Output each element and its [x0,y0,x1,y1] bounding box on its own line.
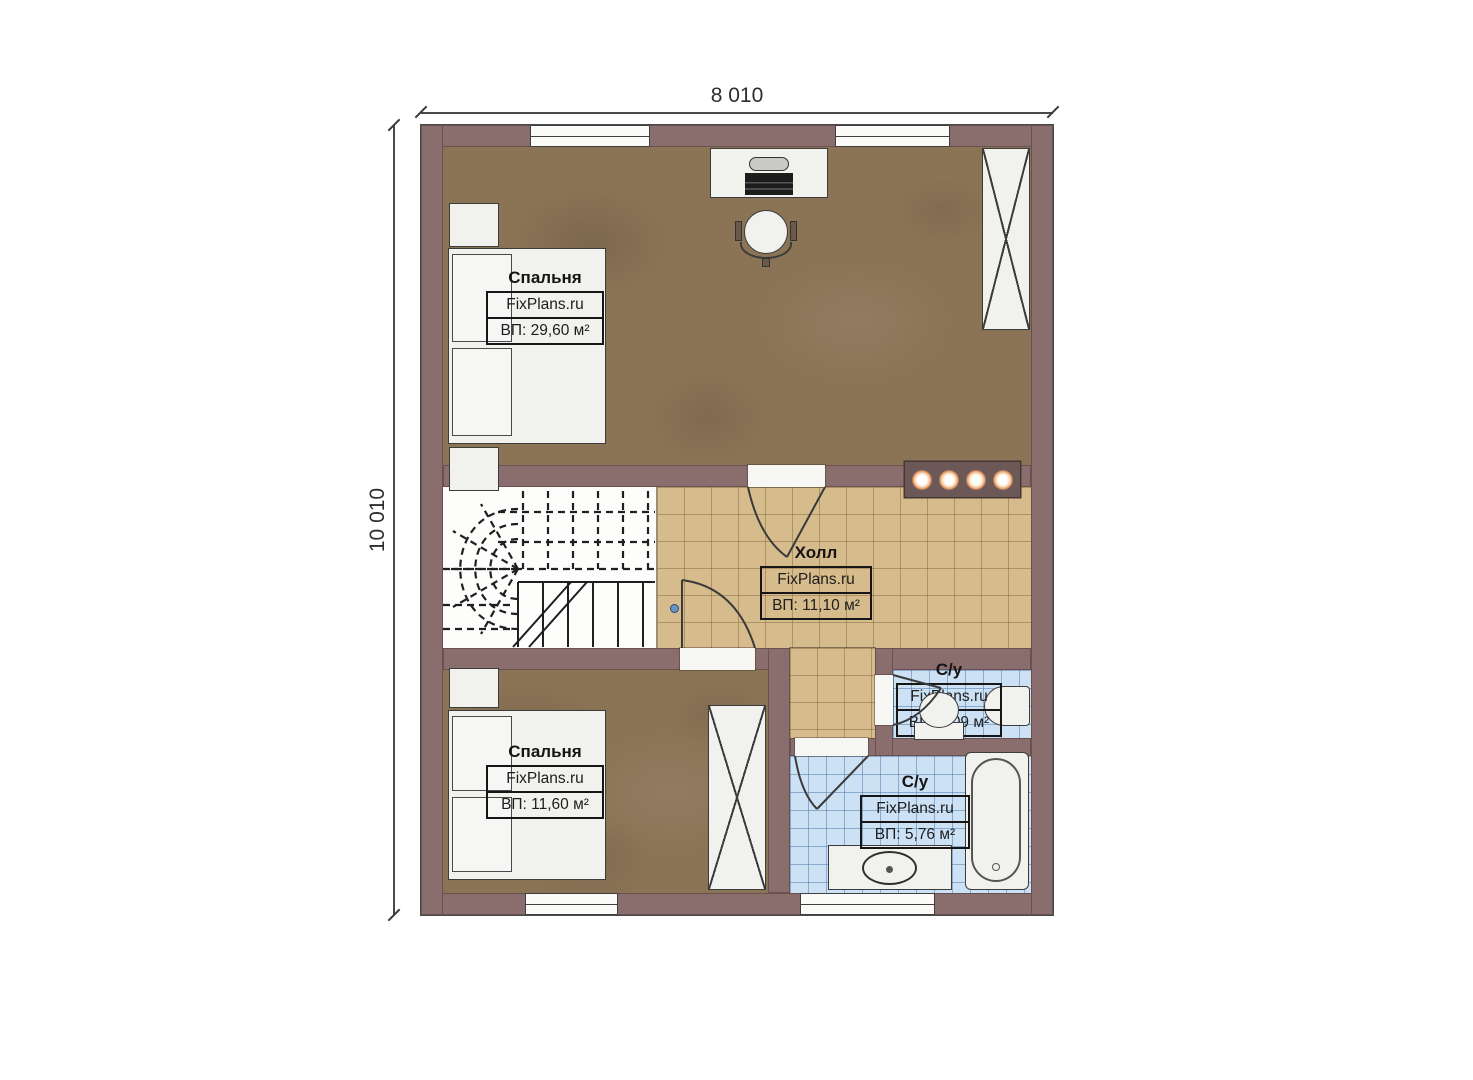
window-top-right [835,125,950,147]
toilet-bowl [919,692,959,728]
room-brand: FixPlans.ru [762,568,870,592]
window-bottom-bathroom [800,893,935,915]
room-info-box: FixPlans.ru ВП: 11,10 м² [760,566,872,620]
wardrobe [982,148,1030,330]
office-chair-armrest [790,221,797,241]
room-name: С/у [896,660,1002,680]
room-label-hall: Холл FixPlans.ru ВП: 11,10 м² [760,543,872,620]
stair-handle-dot [670,604,679,613]
room-area: ВП: 11,60 м² [488,791,602,817]
staircase [443,487,657,648]
desk [710,148,828,198]
dimension-line-left [393,125,395,915]
room-brand: FixPlans.ru [488,293,602,317]
room-label-bedroom-bottom: Спальня FixPlans.ru ВП: 11,60 м² [486,742,604,819]
dimension-height-label: 10 010 [366,460,390,580]
wall-bottom [421,893,1053,915]
room-info-box: FixPlans.ru ВП: 5,76 м² [860,795,970,849]
room-info-box: FixPlans.ru ВП: 11,60 м² [486,765,604,819]
wall-top [421,125,1053,147]
room-brand: FixPlans.ru [488,767,602,791]
wall-right [1031,125,1053,915]
door-opening-bathroom [795,738,868,756]
room-info-box: FixPlans.ru ВП: 29,60 м² [486,291,604,345]
desk-device [749,157,789,171]
office-chair-stem [762,258,770,267]
room-name: Холл [760,543,872,563]
window-bottom-bedroom [525,893,618,915]
light-icon [939,470,959,490]
vanity-faucet [886,866,893,873]
laptop [745,173,793,195]
dimension-width-label: 8 010 [421,84,1053,108]
wardrobe [708,705,766,890]
room-name: Спальня [486,742,604,762]
office-chair-armrest [735,221,742,241]
room-name: Спальня [486,268,604,288]
room-area: ВП: 11,10 м² [762,592,870,618]
light-icon [993,470,1013,490]
bathtub-drain [992,863,1000,871]
window-top-left [530,125,650,147]
wall-left [421,125,443,915]
hall-lights-strip [905,462,1020,497]
door-opening-bedroom-top [748,465,825,487]
office-chair-seat [744,210,788,254]
floor-plan-canvas: 8 010 10 010 [0,0,1473,1080]
nightstand [449,668,499,708]
light-icon [912,470,932,490]
nightstand [449,203,499,247]
room-area: ВП: 5,76 м² [862,821,968,847]
dimension-line-top [421,112,1053,114]
door-opening-wc-small [875,675,893,725]
bathtub [965,752,1029,890]
room-label-bathroom: С/у FixPlans.ru ВП: 5,76 м² [860,772,970,849]
room-area: ВП: 29,60 м² [488,317,602,343]
door-opening-bedroom-bottom [680,648,755,670]
room-brand: FixPlans.ru [862,797,968,821]
pillow [452,348,512,436]
light-icon [966,470,986,490]
room-label-bedroom-top: Спальня FixPlans.ru ВП: 29,60 м² [486,268,604,345]
room-name: С/у [860,772,970,792]
wall-bedroom-bath [768,648,790,893]
nightstand [449,447,499,491]
bathroom-vanity [828,845,952,890]
